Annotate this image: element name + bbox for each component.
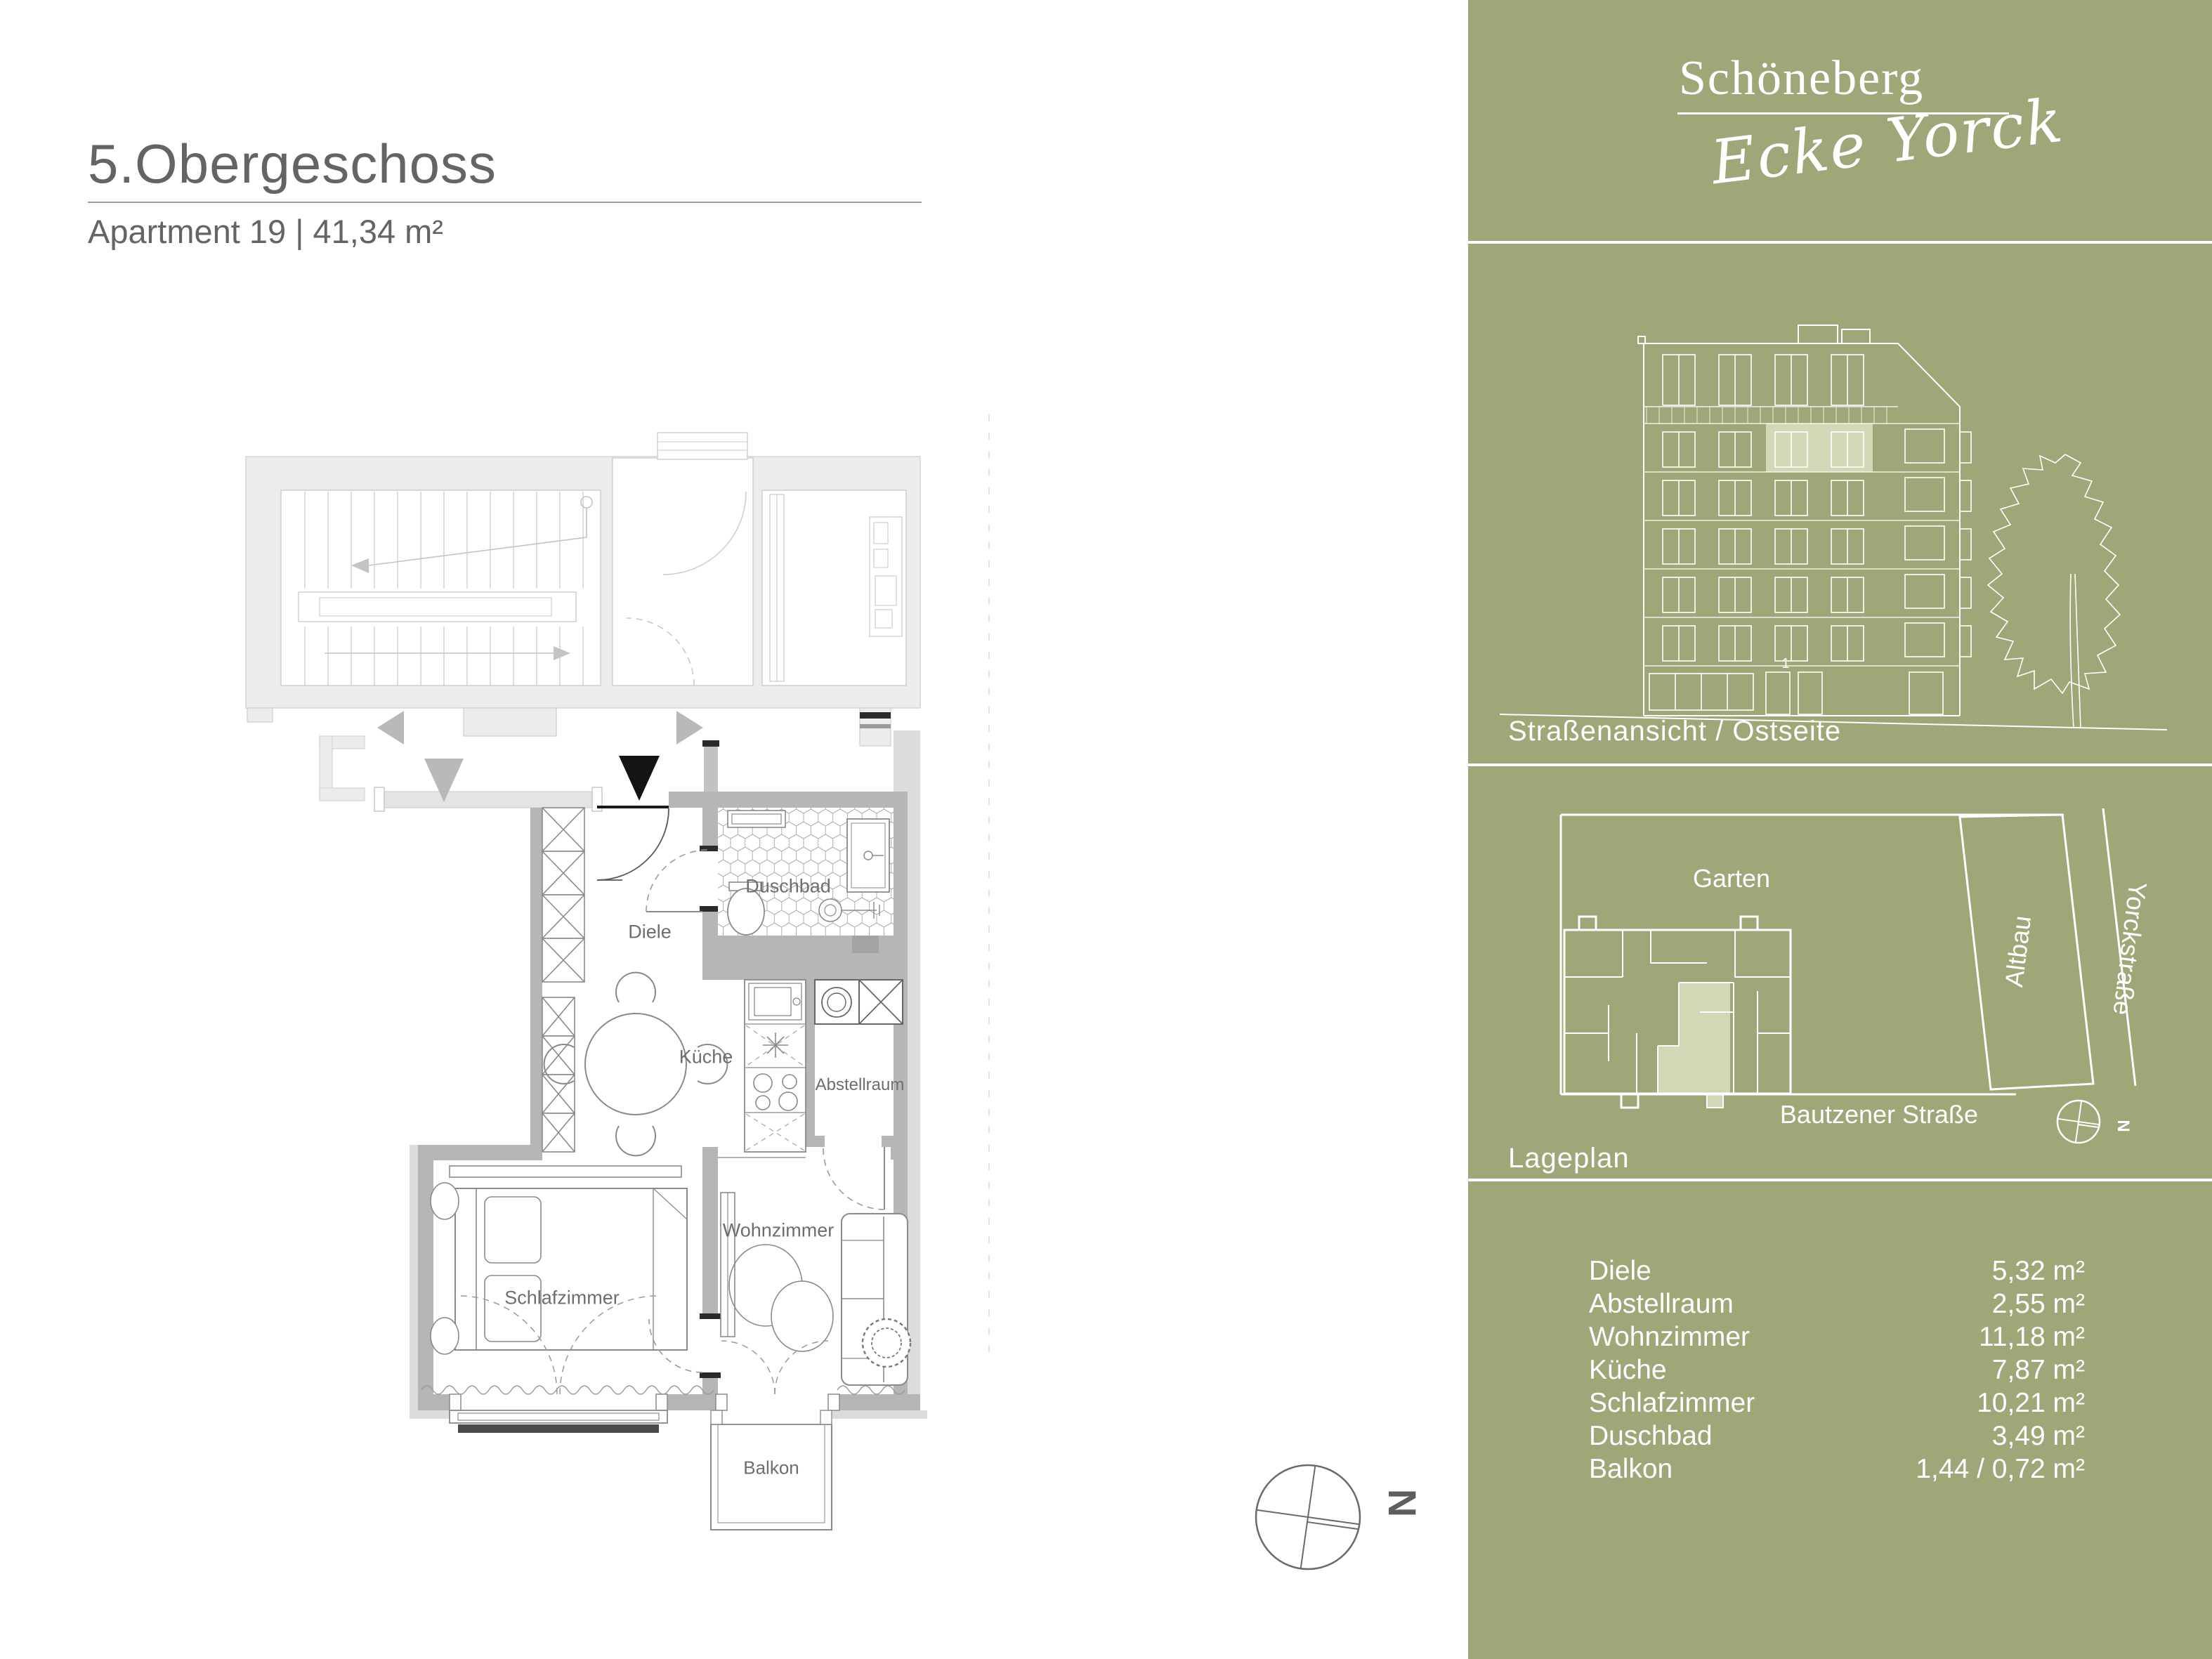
area-row: Abstellraum 2,55 m² xyxy=(1589,1287,2085,1320)
marker-down-black-icon xyxy=(619,756,660,801)
siteplan-garten-label: Garten xyxy=(1693,864,1770,893)
room-label-duschbad: Duschbad xyxy=(745,876,831,898)
tree-icon xyxy=(1988,454,2120,728)
bath-shelf xyxy=(728,811,785,827)
unit-number: 1 xyxy=(1781,656,1789,671)
sidebar-area-section: Diele 5,32 m² Abstellraum 2,55 m² Wohnzi… xyxy=(1468,1181,2212,1659)
area-value: 5,32 m² xyxy=(1992,1254,2085,1287)
siteplan-altbau-label: Altbau xyxy=(1999,914,2036,988)
shower-drain xyxy=(819,899,842,922)
north-compass: N xyxy=(1249,1458,1425,1575)
elevation-caption: Straßenansicht / Ostseite xyxy=(1508,716,1841,747)
area-label: Duschbad xyxy=(1589,1419,1713,1453)
area-row: Duschbad 3,49 m² xyxy=(1589,1419,2085,1453)
area-label: Küche xyxy=(1589,1353,1667,1386)
area-row: Schlafzimmer 10,21 m² xyxy=(1589,1386,2085,1419)
logo-line1: Schöneberg xyxy=(1679,51,1924,107)
highlight-unit xyxy=(1679,983,1730,1046)
north-letter: N xyxy=(1380,1489,1425,1517)
area-label: Wohnzimmer xyxy=(1589,1320,1750,1353)
area-value: 1,44 / 0,72 m² xyxy=(1916,1453,2085,1486)
area-label: Diele xyxy=(1589,1254,1651,1287)
area-table: Diele 5,32 m² Abstellraum 2,55 m² Wohnzi… xyxy=(1589,1254,2085,1486)
kitchen-counter xyxy=(745,980,806,1152)
area-row: Wohnzimmer 11,18 m² xyxy=(1589,1320,2085,1353)
plant xyxy=(863,1319,910,1367)
sidebar-elevation-section: 1 Straßenansicht / Ostseite xyxy=(1468,244,2212,763)
bedroom xyxy=(431,1166,702,1372)
brochure-page: 5.Obergeschoss Apartment 19 | 41,34 m² xyxy=(0,0,2212,1659)
area-value: 3,49 m² xyxy=(1992,1419,2085,1453)
area-label: Schlafzimmer xyxy=(1589,1386,1755,1419)
area-row: Diele 5,32 m² xyxy=(1589,1254,2085,1287)
siteplan-caption: Lageplan xyxy=(1508,1143,1630,1174)
radiator-wave xyxy=(421,1386,714,1394)
shelf xyxy=(450,1166,681,1177)
room-label-diele: Diele xyxy=(628,922,672,943)
siteplan-north-letter: N xyxy=(2114,1120,2133,1132)
room-label-kueche: Küche xyxy=(679,1047,733,1068)
area-row: Balkon 1,44 / 0,72 m² xyxy=(1589,1453,2085,1486)
floor-plan-drawing: N xyxy=(0,0,1470,1659)
marker-right-icon xyxy=(676,711,703,745)
lamp xyxy=(431,1183,459,1219)
highlight-apartment xyxy=(1766,424,1873,472)
sidebar-siteplan-section: Garten Altbau Yorckstraße Bautzener Stra… xyxy=(1468,766,2212,1179)
marker-left-icon xyxy=(377,711,404,745)
area-value: 10,21 m² xyxy=(1977,1386,2085,1419)
area-value: 2,55 m² xyxy=(1992,1287,2085,1320)
area-row: Küche 7,87 m² xyxy=(1589,1353,2085,1386)
siteplan-bautzener-label: Bautzener Straße xyxy=(1780,1100,1978,1129)
room-label-schlafzimmer: Schlafzimmer xyxy=(504,1287,620,1309)
room-label-wohnzimmer: Wohnzimmer xyxy=(723,1220,835,1242)
lamp xyxy=(431,1318,459,1354)
room-label-abstellraum: Abstellraum xyxy=(816,1075,905,1095)
bathroom xyxy=(646,808,894,936)
bed xyxy=(455,1188,687,1350)
wardrobe xyxy=(542,808,584,1152)
siteplan-compass: N xyxy=(2054,1097,2133,1146)
siteplan-drawing: Garten Altbau Yorckstraße Bautzener Stra… xyxy=(1468,766,2212,1179)
area-value: 11,18 m² xyxy=(1979,1320,2085,1353)
kitchen xyxy=(544,973,806,1158)
area-label: Balkon xyxy=(1589,1453,1673,1486)
area-value: 7,87 m² xyxy=(1992,1353,2085,1386)
elevation-drawing: 1 xyxy=(1468,244,2212,763)
entry-door xyxy=(597,807,669,880)
sidebar-logo-section: Schöneberg Ecke Yorck xyxy=(1468,0,2212,241)
room-label-balkon: Balkon xyxy=(743,1457,799,1479)
area-label: Abstellraum xyxy=(1589,1287,1734,1320)
dining-table xyxy=(585,1014,686,1115)
